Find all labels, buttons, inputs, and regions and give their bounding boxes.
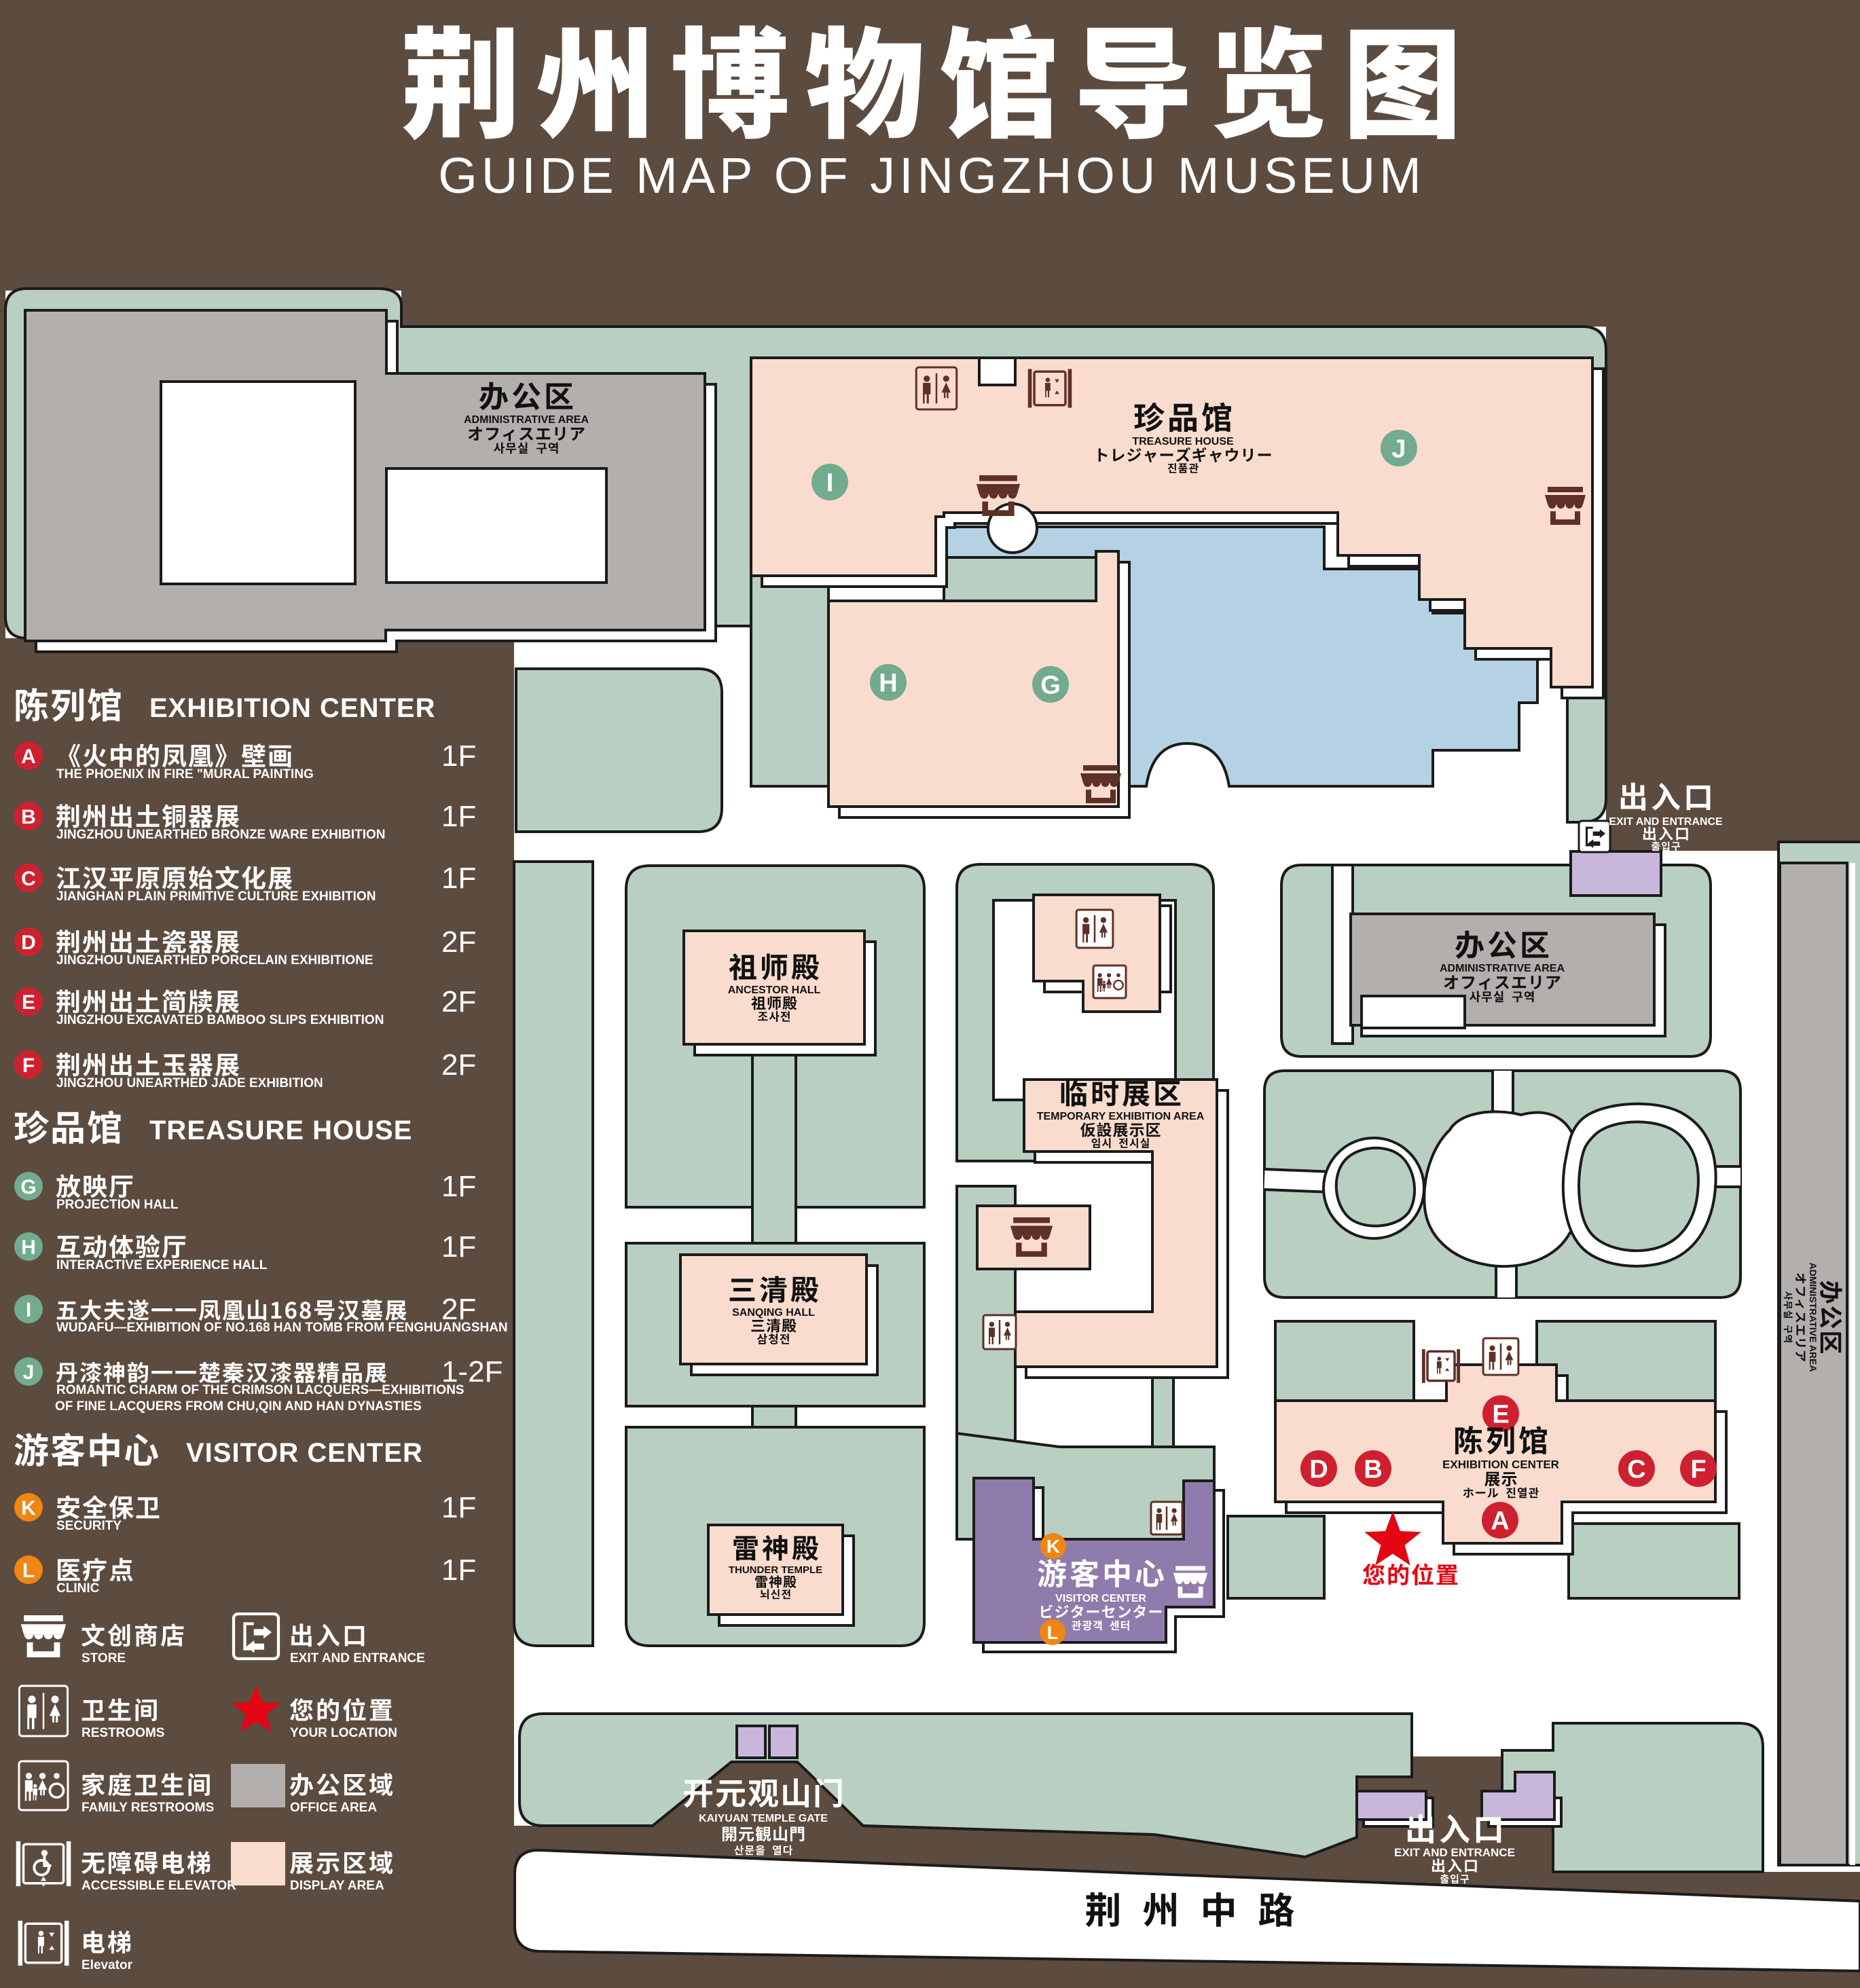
svg-text:JINGZHOU UNEARTHED BRONZE WARE: JINGZHOU UNEARTHED BRONZE WARE EXHIBITIO… xyxy=(56,828,386,842)
svg-text:K: K xyxy=(21,1497,36,1520)
svg-text:PROJECTION HALL: PROJECTION HALL xyxy=(56,1198,179,1212)
svg-text:TEMPORARY EXHIBITION AREA: TEMPORARY EXHIBITION AREA xyxy=(1037,1111,1205,1122)
svg-text:F: F xyxy=(22,1054,35,1077)
svg-text:D: D xyxy=(1309,1456,1328,1484)
svg-text:G: G xyxy=(1040,671,1061,700)
svg-text:THUNDER TEMPLE: THUNDER TEMPLE xyxy=(729,1564,822,1576)
svg-text:VISITOR CENTER: VISITOR CENTER xyxy=(1055,1593,1146,1604)
svg-text:OF FINE LACQUERS FROM CHU,QIN: OF FINE LACQUERS FROM CHU,QIN AND HAN DY… xyxy=(55,1399,422,1414)
svg-text:E: E xyxy=(22,991,35,1014)
svg-text:I: I xyxy=(26,1299,31,1321)
svg-text:VISITOR CENTER: VISITOR CENTER xyxy=(186,1438,423,1468)
svg-text:EXIT AND ENTRANCE: EXIT AND ENTRANCE xyxy=(1609,816,1723,828)
svg-text:SECURITY: SECURITY xyxy=(56,1519,122,1533)
svg-text:1-2F: 1-2F xyxy=(441,1355,503,1388)
svg-text:1F: 1F xyxy=(441,800,476,833)
svg-text:TREASURE HOUSE: TREASURE HOUSE xyxy=(149,1116,412,1145)
svg-text:INTERACTIVE EXPERIENCE HALL: INTERACTIVE EXPERIENCE HALL xyxy=(56,1258,268,1272)
svg-text:TREASURE HOUSE: TREASURE HOUSE xyxy=(1132,436,1234,447)
svg-text:1F: 1F xyxy=(441,862,476,895)
svg-text:GUIDE MAP OF JINGZHOU MUSEUM: GUIDE MAP OF JINGZHOU MUSEUM xyxy=(438,147,1425,204)
svg-text:KAIYUAN TEMPLE GATE: KAIYUAN TEMPLE GATE xyxy=(699,1813,828,1824)
svg-text:1F: 1F xyxy=(441,1491,476,1524)
svg-text:C: C xyxy=(1627,1456,1645,1484)
svg-text:L: L xyxy=(1046,1622,1058,1643)
svg-text:1F: 1F xyxy=(441,1553,476,1587)
svg-text:SANQING HALL: SANQING HALL xyxy=(732,1307,815,1319)
svg-text:G: G xyxy=(20,1176,36,1198)
svg-text:FAMILY RESTROOMS: FAMILY RESTROOMS xyxy=(81,1801,214,1815)
svg-text:EXHIBITION CENTER: EXHIBITION CENTER xyxy=(1442,1458,1559,1471)
svg-text:C: C xyxy=(21,868,36,890)
svg-text:ANCESTOR HALL: ANCESTOR HALL xyxy=(728,984,821,996)
svg-text:Elevator: Elevator xyxy=(81,1958,133,1972)
svg-text:1F: 1F xyxy=(441,1170,476,1203)
svg-text:2F: 2F xyxy=(441,1048,476,1082)
svg-text:EXHIBITION CENTER: EXHIBITION CENTER xyxy=(149,693,435,723)
svg-text:J: J xyxy=(1391,435,1406,464)
svg-text:H: H xyxy=(879,669,897,698)
svg-text:A: A xyxy=(1491,1507,1509,1536)
svg-text:1F: 1F xyxy=(441,1230,476,1264)
svg-text:E: E xyxy=(1492,1401,1509,1429)
svg-text:JINGZHOU UNEARTHED JADE EXHIBI: JINGZHOU UNEARTHED JADE EXHIBITION xyxy=(56,1076,323,1090)
svg-text:D: D xyxy=(21,932,36,954)
svg-text:CLINIC: CLINIC xyxy=(56,1581,100,1596)
svg-text:ADMINISTRATIVE AREA: ADMINISTRATIVE AREA xyxy=(464,414,589,426)
svg-text:EXIT AND ENTRANCE: EXIT AND ENTRANCE xyxy=(1394,1846,1515,1859)
svg-text:JINGZHOU UNEARTHED PORCELAIN E: JINGZHOU UNEARTHED PORCELAIN EXHIBITIONE xyxy=(56,953,373,968)
svg-text:B: B xyxy=(21,806,36,828)
svg-text:ADMINISTRATIVE AREA: ADMINISTRATIVE AREA xyxy=(1440,963,1565,974)
svg-text:ROMANTIC CHARM OF THE CRIMSON: ROMANTIC CHARM OF THE CRIMSON LACQUERS—E… xyxy=(56,1383,464,1397)
svg-text:JINGZHOU EXCAVATED BAMBOO SLIP: JINGZHOU EXCAVATED BAMBOO SLIPS EXHIBITI… xyxy=(56,1013,384,1027)
svg-text:THE PHOENIX IN FIRE "MURAL PAI: THE PHOENIX IN FIRE "MURAL PAINTING xyxy=(56,767,314,781)
svg-text:DISPLAY AREA: DISPLAY AREA xyxy=(290,1879,384,1893)
svg-text:2F: 2F xyxy=(441,985,476,1018)
svg-text:ADMINISTRATIVE AREA: ADMINISTRATIVE AREA xyxy=(1808,1263,1819,1372)
svg-text:EXIT AND ENTRANCE: EXIT AND ENTRANCE xyxy=(290,1651,425,1665)
svg-text:RESTROOMS: RESTROOMS xyxy=(81,1726,164,1740)
svg-text:2F: 2F xyxy=(441,1293,476,1326)
svg-text:K: K xyxy=(1046,1536,1060,1557)
svg-text:1F: 1F xyxy=(441,739,476,773)
svg-text:JIANGHAN PLAIN PRIMITIVE CULTU: JIANGHAN PLAIN PRIMITIVE CULTURE EXHIBIT… xyxy=(56,889,376,904)
svg-text:H: H xyxy=(21,1236,36,1259)
svg-text:ACCESSIBLE ELEVATOR: ACCESSIBLE ELEVATOR xyxy=(81,1879,236,1893)
svg-text:F: F xyxy=(1690,1456,1706,1484)
svg-text:WUDAFU—EXHIBITION OF NO.168 HA: WUDAFU—EXHIBITION OF NO.168 HAN TOMB FRO… xyxy=(56,1321,508,1335)
svg-text:2F: 2F xyxy=(441,925,476,959)
svg-text:OFFICE AREA: OFFICE AREA xyxy=(290,1801,377,1815)
svg-text:J: J xyxy=(23,1361,35,1384)
svg-text:STORE: STORE xyxy=(81,1651,126,1665)
svg-text:I: I xyxy=(826,469,834,498)
svg-text:YOUR LOCATION: YOUR LOCATION xyxy=(290,1726,397,1740)
svg-text:L: L xyxy=(22,1560,35,1582)
svg-text:A: A xyxy=(21,745,36,768)
svg-text:B: B xyxy=(1364,1456,1382,1484)
